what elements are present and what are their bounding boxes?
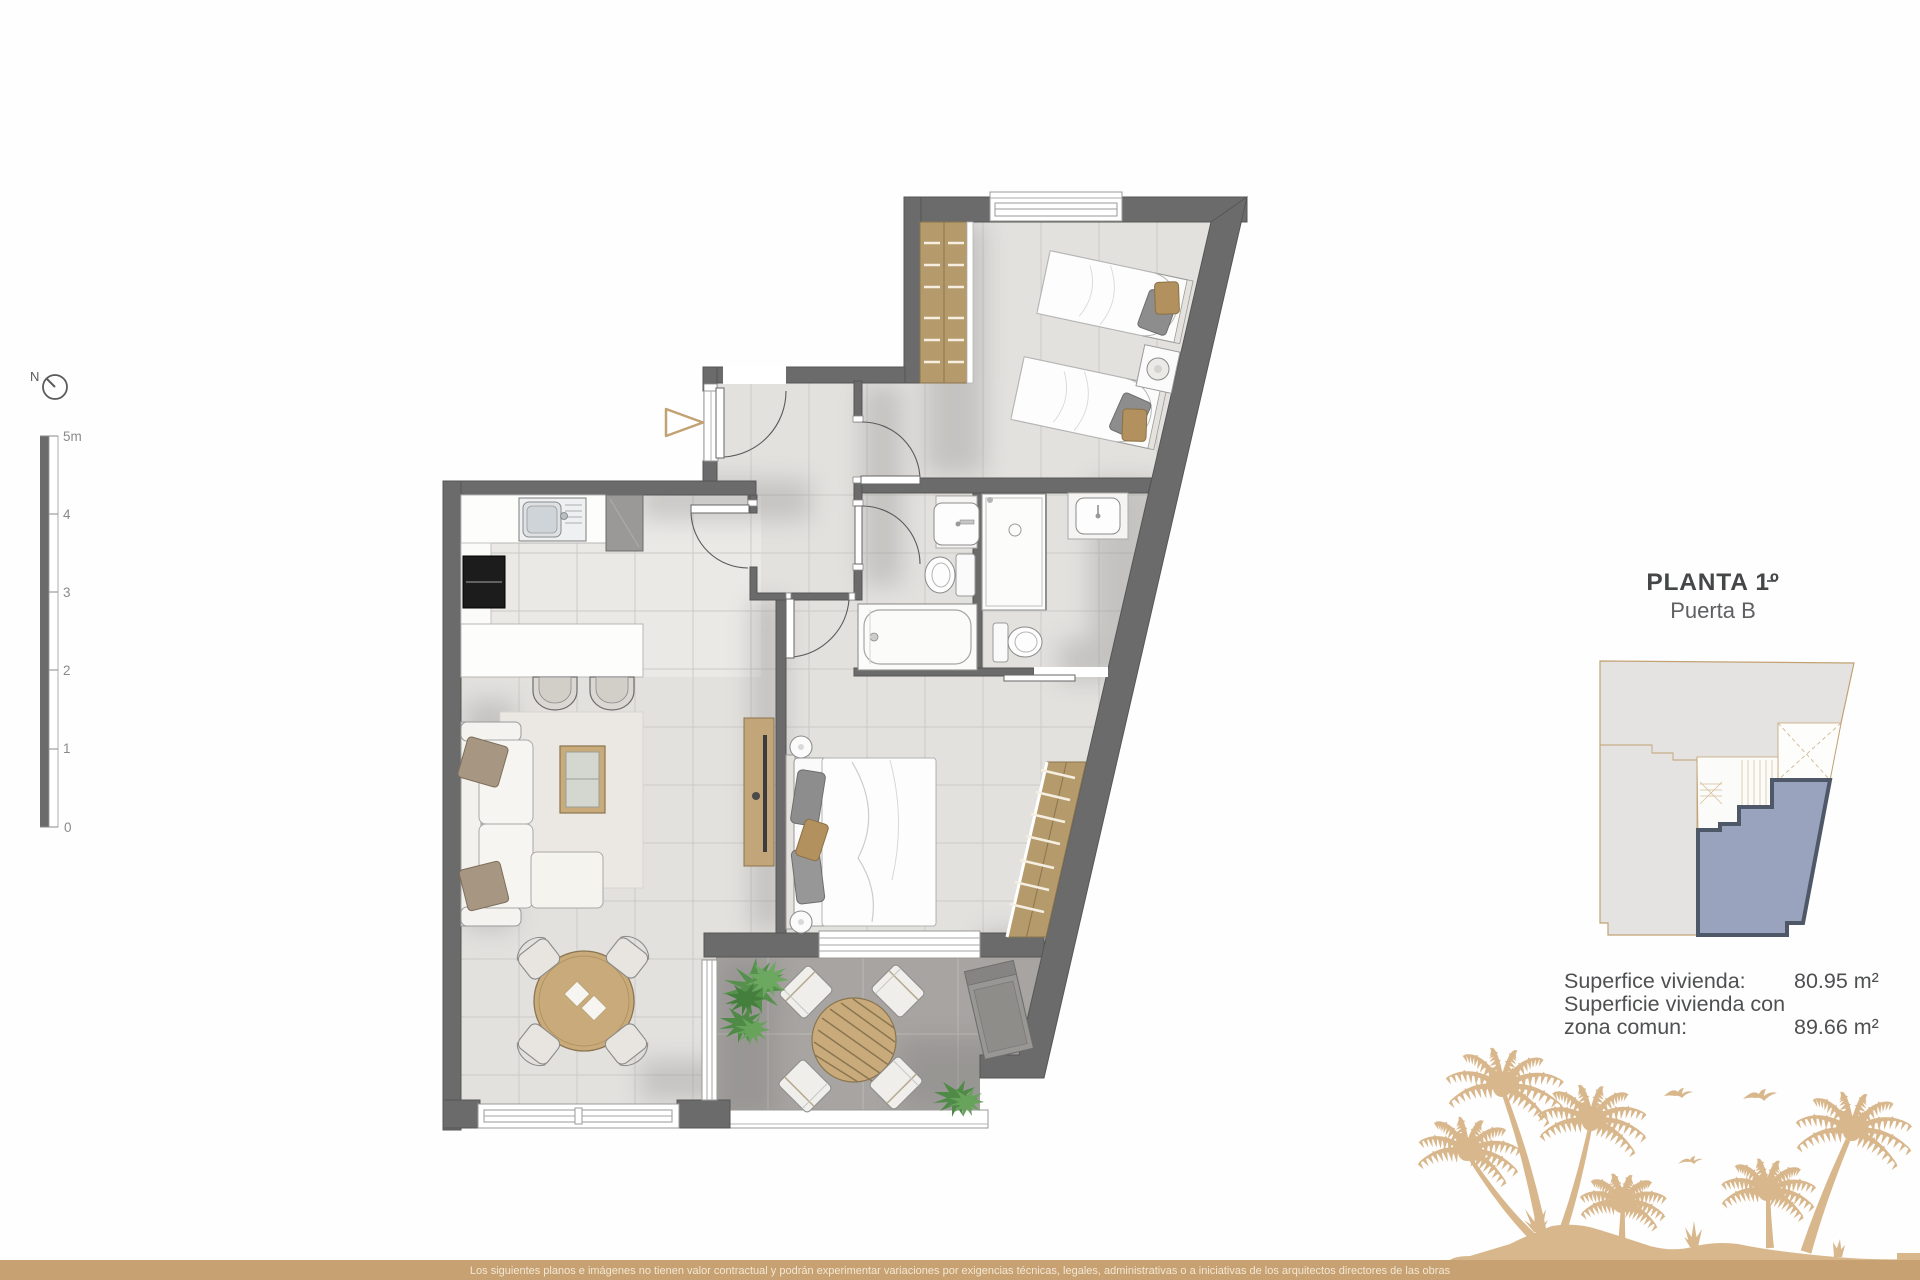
svg-text:2: 2	[63, 663, 71, 678]
svg-text:zona comun:: zona comun:	[1564, 1015, 1687, 1039]
svg-text:80.95 m²: 80.95 m²	[1794, 969, 1879, 993]
svg-text:1: 1	[63, 741, 71, 756]
svg-text:PLANTA 1º: PLANTA 1º	[1646, 569, 1779, 596]
svg-text:0: 0	[64, 820, 72, 835]
svg-text:Superfice vivienda:: Superfice vivienda:	[1564, 969, 1746, 993]
svg-text:Superficie vivienda con: Superficie vivienda con	[1564, 992, 1785, 1016]
svg-text:4: 4	[63, 507, 71, 522]
svg-text:Puerta B: Puerta B	[1670, 598, 1756, 623]
svg-text:89.66 m²: 89.66 m²	[1794, 1015, 1879, 1039]
svg-text:Los siguientes planos e imágen: Los siguientes planos e imágenes no tien…	[470, 1265, 1451, 1277]
svg-text:3: 3	[63, 585, 71, 600]
svg-text:N: N	[30, 369, 39, 384]
svg-text:5m: 5m	[63, 429, 82, 444]
